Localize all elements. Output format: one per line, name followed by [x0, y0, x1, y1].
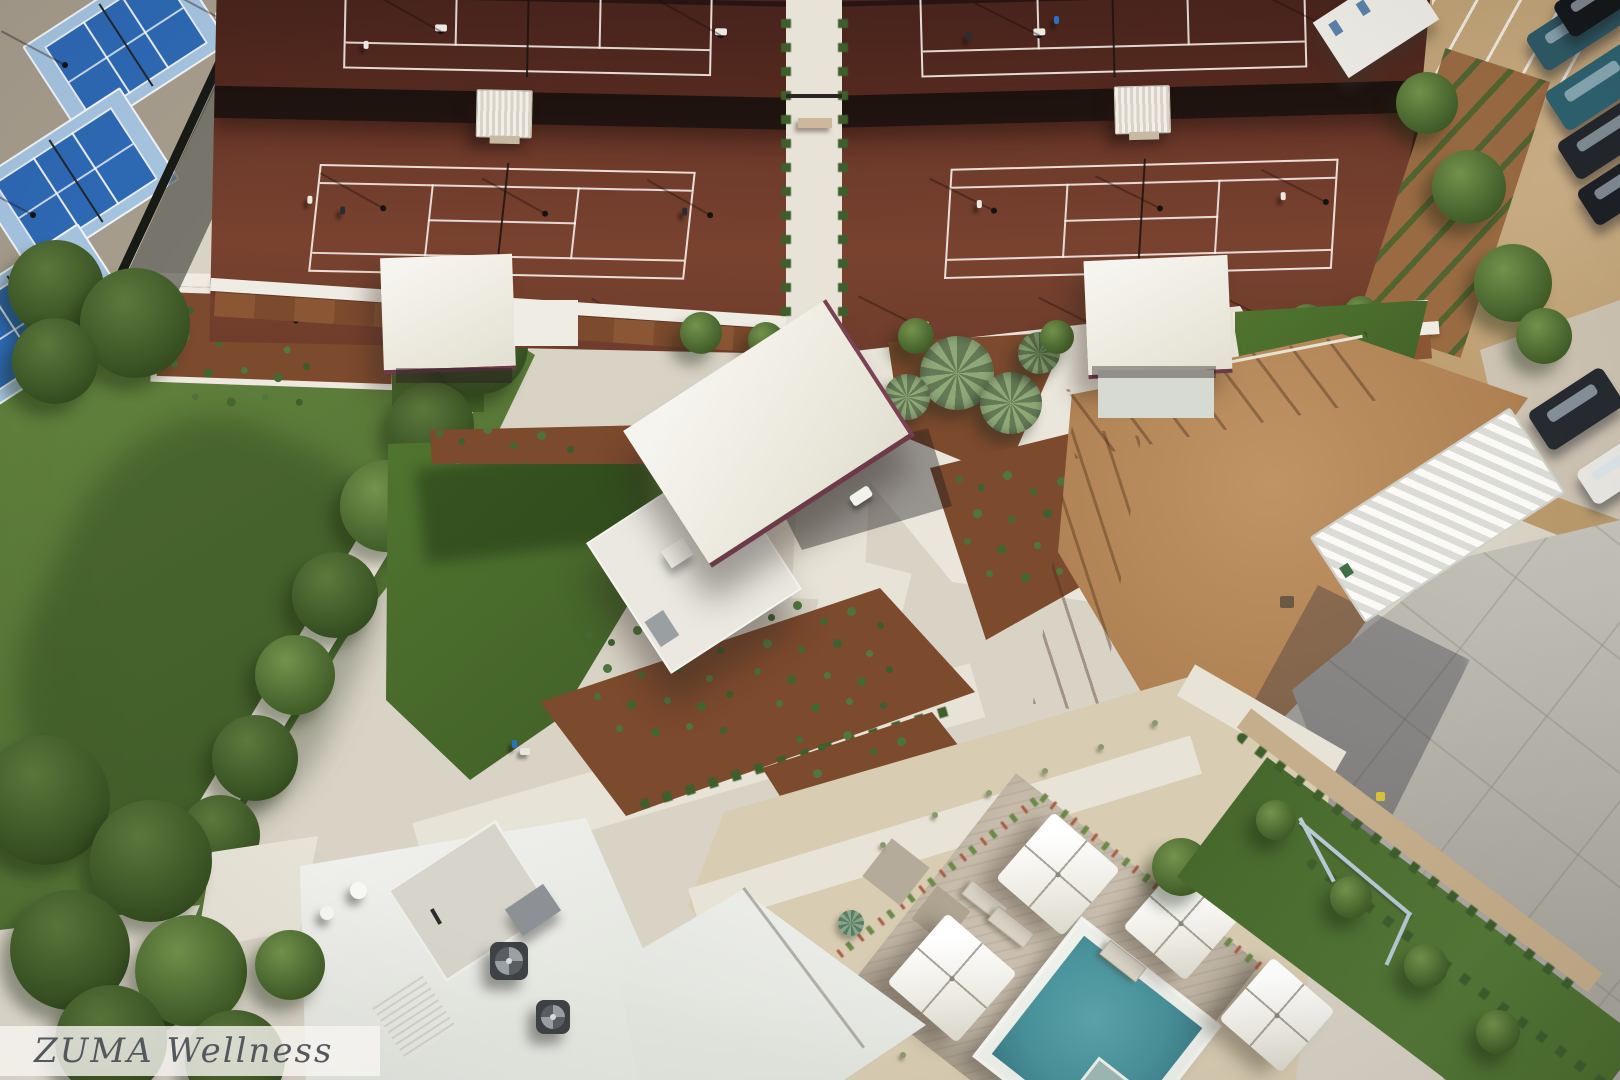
stroller [520, 748, 530, 755]
light-pole [438, 28, 444, 34]
shrub [1152, 720, 1158, 726]
ac-unit [490, 942, 528, 980]
tennis-player [307, 196, 312, 204]
tree [255, 635, 335, 715]
tennis-player [966, 32, 971, 40]
shrub-ball [1404, 944, 1448, 988]
shrub [932, 812, 938, 818]
shrub [986, 790, 992, 796]
walkway-hedge [781, 10, 791, 340]
tennis-court-upper [343, 0, 714, 76]
tree [212, 715, 298, 801]
tennis-net [526, 0, 531, 77]
light-pole [62, 62, 68, 68]
roof-cylinder [320, 906, 334, 920]
yellow-seat [1376, 792, 1385, 801]
light-pole [707, 212, 713, 218]
tree [1396, 72, 1458, 134]
pine-plants [740, 600, 890, 710]
shrub-ball [1476, 1010, 1520, 1054]
annex-door [645, 610, 680, 647]
umpire-bench [1129, 131, 1159, 140]
light-pole [542, 211, 548, 217]
roof-cylinder [350, 882, 367, 899]
light-pole [30, 212, 36, 218]
caption-band: ZUMA Wellness Center [0, 1026, 380, 1076]
tree [1516, 308, 1572, 364]
tree [292, 552, 378, 638]
shrub [880, 842, 886, 848]
ac-unit [536, 1000, 570, 1034]
shrub-ball [1256, 800, 1296, 840]
central-walkway [786, 0, 842, 352]
umpire-bench [490, 136, 520, 145]
pavilion-left-porch [514, 300, 578, 346]
shrub [1098, 744, 1104, 750]
pavilion-right-roof [1083, 255, 1232, 379]
person-on-lawn [512, 740, 517, 748]
tennis-court-upper [917, 0, 1307, 78]
umpire-shelter [1114, 85, 1171, 134]
pavilion-left-roof [380, 254, 516, 375]
window [1356, 0, 1371, 16]
tennis-player [364, 41, 369, 49]
annex-vent [661, 538, 694, 569]
walkway-bench [798, 118, 832, 128]
tennis-player [1281, 192, 1286, 200]
caption-text: ZUMA Wellness Center [0, 1026, 380, 1080]
tennis-player [1054, 16, 1059, 24]
tree [680, 312, 722, 354]
palm-tree [980, 372, 1042, 434]
light-pole [380, 205, 386, 211]
tree [1432, 150, 1506, 224]
walkway-hedge [838, 10, 848, 340]
tree [12, 318, 98, 404]
tennis-net [1109, 0, 1115, 78]
tennis-player [340, 206, 345, 214]
umpire-shelter [476, 89, 533, 138]
vent-box [1280, 596, 1294, 608]
aerial-photo: ZUMA Wellness Center [0, 0, 1620, 1080]
tree [898, 318, 934, 354]
tennis-player [682, 208, 687, 216]
window [1328, 20, 1343, 37]
pavilion-right-shade [1092, 366, 1216, 378]
shrub [900, 1052, 906, 1058]
tennis-player [977, 200, 982, 208]
light-pole [718, 32, 724, 38]
agave-plant [838, 910, 864, 936]
shrub-ball [1330, 876, 1372, 918]
container-label [1339, 563, 1354, 579]
pavilion-left-shade [396, 368, 512, 383]
tree [1040, 320, 1074, 354]
tree [255, 930, 325, 1000]
walkway-gate [786, 94, 842, 98]
shrub [1042, 768, 1048, 774]
